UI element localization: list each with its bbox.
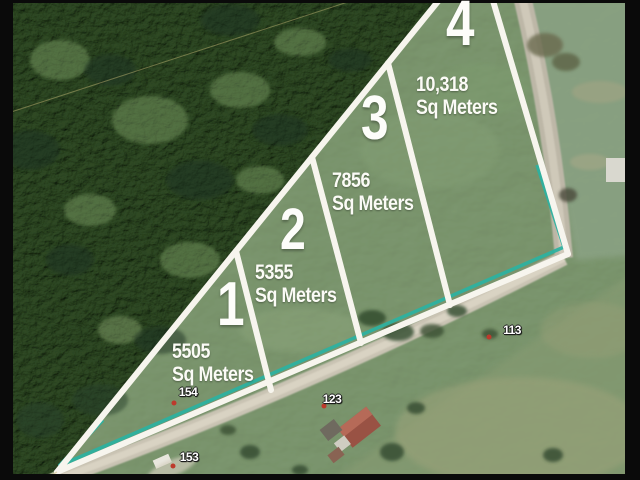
building-right-edge xyxy=(606,158,625,182)
satellite-scene xyxy=(0,0,640,480)
aerial-map: 1 2 3 4 5505 Sq Meters 5355 Sq Meters 78… xyxy=(0,0,640,480)
